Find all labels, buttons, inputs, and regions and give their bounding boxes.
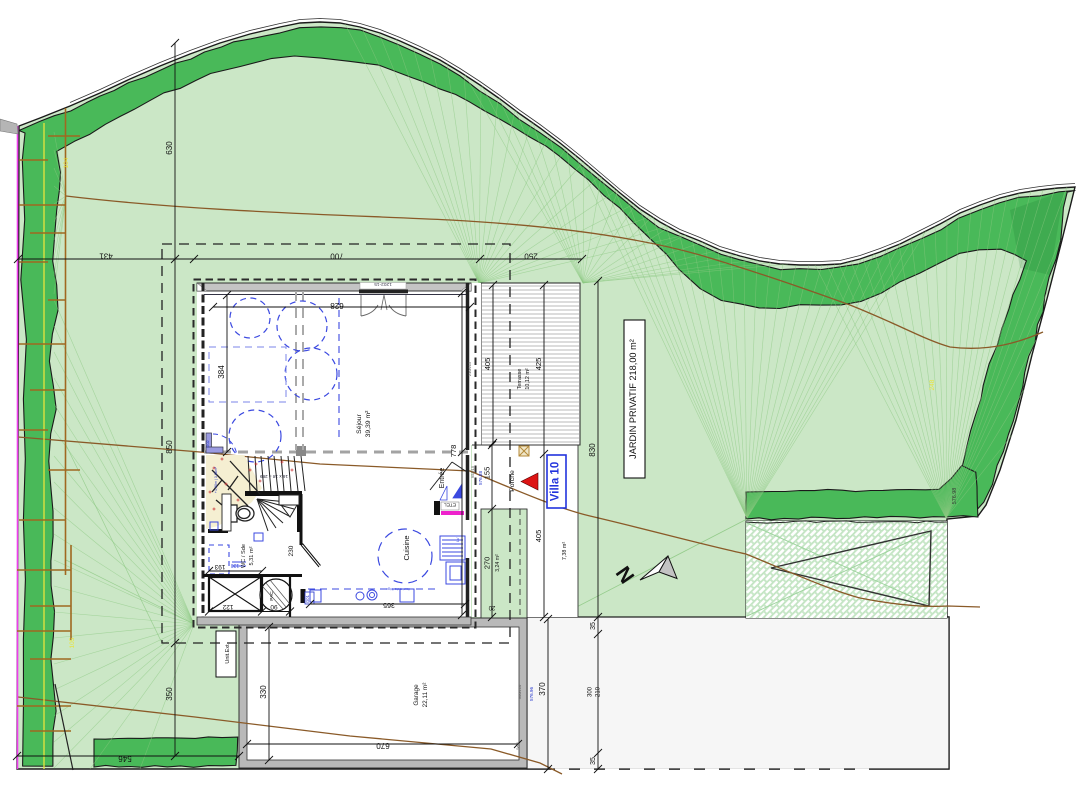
svg-text:G01: G01 bbox=[305, 594, 310, 603]
svg-text:300/210: 300/210 bbox=[517, 684, 522, 699]
svg-text:830: 830 bbox=[588, 443, 597, 457]
svg-text:365: 365 bbox=[383, 601, 395, 608]
svg-text:Porche: Porche bbox=[509, 470, 516, 492]
svg-text:35: 35 bbox=[590, 622, 597, 630]
svg-text:four+niche+frigo: four+niche+frigo bbox=[386, 587, 409, 591]
svg-text:250: 250 bbox=[524, 252, 538, 261]
svg-text:105: 105 bbox=[69, 637, 76, 648]
svg-text:330: 330 bbox=[259, 685, 268, 699]
svg-text:Unit.Ext: Unit.Ext bbox=[225, 644, 231, 664]
svg-text:193: 193 bbox=[214, 563, 225, 570]
svg-text:90: 90 bbox=[270, 603, 278, 610]
svg-text:35: 35 bbox=[590, 757, 597, 765]
svg-text:PAC: PAC bbox=[269, 591, 275, 601]
svg-text:850: 850 bbox=[165, 440, 174, 454]
svg-text:405: 405 bbox=[534, 530, 543, 543]
svg-text:16 x 18 = 289: 16 x 18 = 289 bbox=[260, 474, 288, 479]
svg-text:22,11 m²: 22,11 m² bbox=[422, 683, 429, 708]
svg-text:7,38 m²: 7,38 m² bbox=[562, 542, 568, 560]
svg-text:370: 370 bbox=[538, 682, 547, 696]
svg-text:384: 384 bbox=[217, 365, 226, 379]
svg-text:Terrasse: Terrasse bbox=[517, 369, 523, 390]
svg-text:248: 248 bbox=[929, 379, 936, 390]
svg-text:546: 546 bbox=[118, 754, 132, 763]
svg-text:210/215: 210/215 bbox=[467, 361, 472, 376]
svg-text:Villa 10: Villa 10 bbox=[550, 462, 562, 501]
svg-text:700: 700 bbox=[330, 252, 344, 261]
svg-text:95/215: 95/215 bbox=[470, 465, 475, 478]
svg-text:LV: LV bbox=[455, 537, 460, 542]
svg-text:1202-15: 1202-15 bbox=[374, 281, 392, 287]
svg-text:300: 300 bbox=[588, 686, 594, 697]
svg-text:431: 431 bbox=[99, 252, 113, 261]
svg-text:425: 425 bbox=[534, 358, 543, 371]
svg-text:5,31 m²: 5,31 m² bbox=[249, 546, 255, 565]
svg-text:628: 628 bbox=[330, 301, 344, 310]
svg-text:WC / Sde: WC / Sde bbox=[241, 544, 247, 568]
svg-text:Garage: Garage bbox=[413, 684, 420, 706]
svg-text:ETEL: ETEL bbox=[444, 502, 456, 508]
svg-text:Séjour: Séjour bbox=[356, 413, 363, 433]
svg-text:576.96: 576.96 bbox=[529, 687, 534, 701]
svg-text:130: 130 bbox=[231, 562, 240, 568]
svg-text:+1,00m | 3,08m²: +1,00m | 3,08m² bbox=[214, 466, 218, 493]
svg-text:230: 230 bbox=[288, 545, 295, 556]
svg-text:20: 20 bbox=[488, 604, 495, 610]
svg-text:405: 405 bbox=[483, 358, 492, 371]
svg-text:210: 210 bbox=[596, 686, 602, 697]
svg-text:Seuil: Seuil bbox=[516, 742, 520, 750]
svg-text:270: 270 bbox=[483, 557, 492, 570]
svg-text:10,12 m²: 10,12 m² bbox=[525, 368, 531, 389]
svg-text:122: 122 bbox=[222, 603, 233, 610]
svg-text:JARDIN PRIVATIF 218,00 m²: JARDIN PRIVATIF 218,00 m² bbox=[628, 339, 638, 459]
svg-text:Cuisine: Cuisine bbox=[402, 535, 411, 560]
svg-text:670: 670 bbox=[376, 741, 390, 750]
svg-text:G02: G02 bbox=[205, 439, 210, 447]
svg-text:630: 630 bbox=[165, 141, 174, 155]
svg-text:576.98: 576.98 bbox=[952, 488, 958, 505]
svg-text:155: 155 bbox=[483, 467, 492, 480]
svg-text:778: 778 bbox=[449, 445, 458, 458]
svg-text:39,39 m²: 39,39 m² bbox=[365, 410, 372, 438]
svg-text:576.88: 576.88 bbox=[478, 471, 483, 485]
svg-text:104: 104 bbox=[63, 157, 70, 168]
svg-text:3,24 m²: 3,24 m² bbox=[495, 554, 501, 572]
svg-text:350: 350 bbox=[165, 687, 174, 701]
